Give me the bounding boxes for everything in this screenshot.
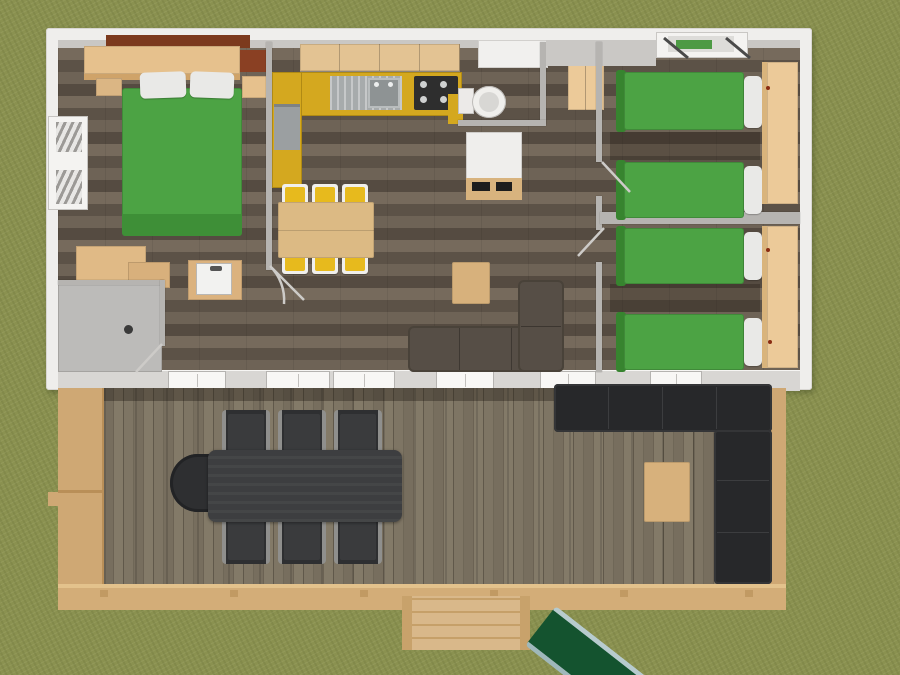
- chair-pad: [284, 520, 320, 560]
- entry-steps: [402, 596, 530, 650]
- outdoor-chair: [278, 516, 326, 564]
- left-window-louvers: [56, 122, 82, 152]
- faucet-dot: [374, 82, 379, 87]
- chair-pad: [284, 414, 320, 452]
- pillow: [744, 318, 762, 366]
- outdoor-sofa-row: [554, 384, 772, 432]
- toilet-bowl-inner: [479, 92, 499, 112]
- hall-wall: [596, 42, 602, 162]
- faucet-dot: [388, 82, 393, 87]
- sofa-divider: [716, 387, 717, 429]
- pillow: [744, 166, 762, 214]
- outdoor-chair: [334, 516, 382, 564]
- sofa-divider: [662, 387, 663, 429]
- wardrobe-handle: [766, 248, 770, 252]
- burner: [440, 81, 447, 88]
- coffee-table: [452, 262, 490, 304]
- fridge-handle: [496, 182, 512, 191]
- slide: [525, 606, 672, 675]
- stool: [96, 78, 122, 96]
- double-bed-foot: [122, 214, 242, 236]
- fridge-unit: [466, 132, 522, 180]
- chair-pad: [340, 520, 376, 560]
- pillow: [190, 71, 235, 99]
- deck-post: [100, 590, 108, 597]
- deck-rail-joint: [58, 490, 104, 493]
- hall-wall: [596, 262, 602, 372]
- outdoor-sofa-column: [714, 430, 772, 584]
- pillow: [744, 232, 762, 280]
- wardrobe: [762, 62, 798, 204]
- floor-shadow: [610, 132, 760, 160]
- wardrobe-handle: [768, 340, 772, 344]
- chair-pad: [228, 520, 264, 560]
- shower-wall: [58, 280, 164, 285]
- floor-shadow: [610, 284, 760, 312]
- deck-post: [745, 590, 753, 597]
- scene-3d-floorplan: [0, 0, 900, 675]
- burner: [420, 81, 427, 88]
- shower-wall: [160, 280, 165, 346]
- dining-table: [278, 202, 374, 258]
- sink-basin: [368, 78, 400, 108]
- single-bed: [624, 228, 744, 284]
- left-window-louvers: [56, 170, 82, 204]
- dishwasher-front: [274, 104, 300, 150]
- skylight-green: [676, 40, 712, 49]
- deck-post: [230, 590, 238, 597]
- faucet: [210, 266, 222, 271]
- chair-pad: [228, 414, 264, 452]
- white-unit: [478, 40, 548, 68]
- deck-frame-left: [58, 388, 104, 608]
- deck-post: [360, 590, 368, 597]
- wardrobe-handle: [766, 86, 770, 90]
- sofa-divider: [717, 480, 769, 481]
- shower-drain: [124, 325, 133, 334]
- nightstand: [242, 76, 268, 98]
- chair-pad: [340, 414, 376, 452]
- sofa-divider: [717, 532, 769, 533]
- outdoor-chair: [222, 516, 270, 564]
- sofa-chaise-divider: [521, 326, 561, 327]
- single-bed: [624, 162, 744, 218]
- sofa-divider: [608, 387, 609, 429]
- burner: [440, 96, 447, 103]
- single-bed: [624, 314, 744, 370]
- pillow: [744, 76, 762, 128]
- pillow: [140, 71, 187, 99]
- deck-coffee-table: [644, 462, 690, 522]
- outdoor-table: [208, 450, 402, 522]
- fridge-handle: [472, 182, 490, 191]
- shower-floor: [58, 284, 162, 372]
- wc-wall: [458, 120, 546, 126]
- burner: [420, 96, 427, 103]
- deck-post: [620, 590, 628, 597]
- single-bed: [624, 72, 744, 130]
- deck-rail-tab: [48, 492, 58, 506]
- upper-cabinets: [300, 44, 460, 74]
- roof-trim-corner: [236, 50, 266, 72]
